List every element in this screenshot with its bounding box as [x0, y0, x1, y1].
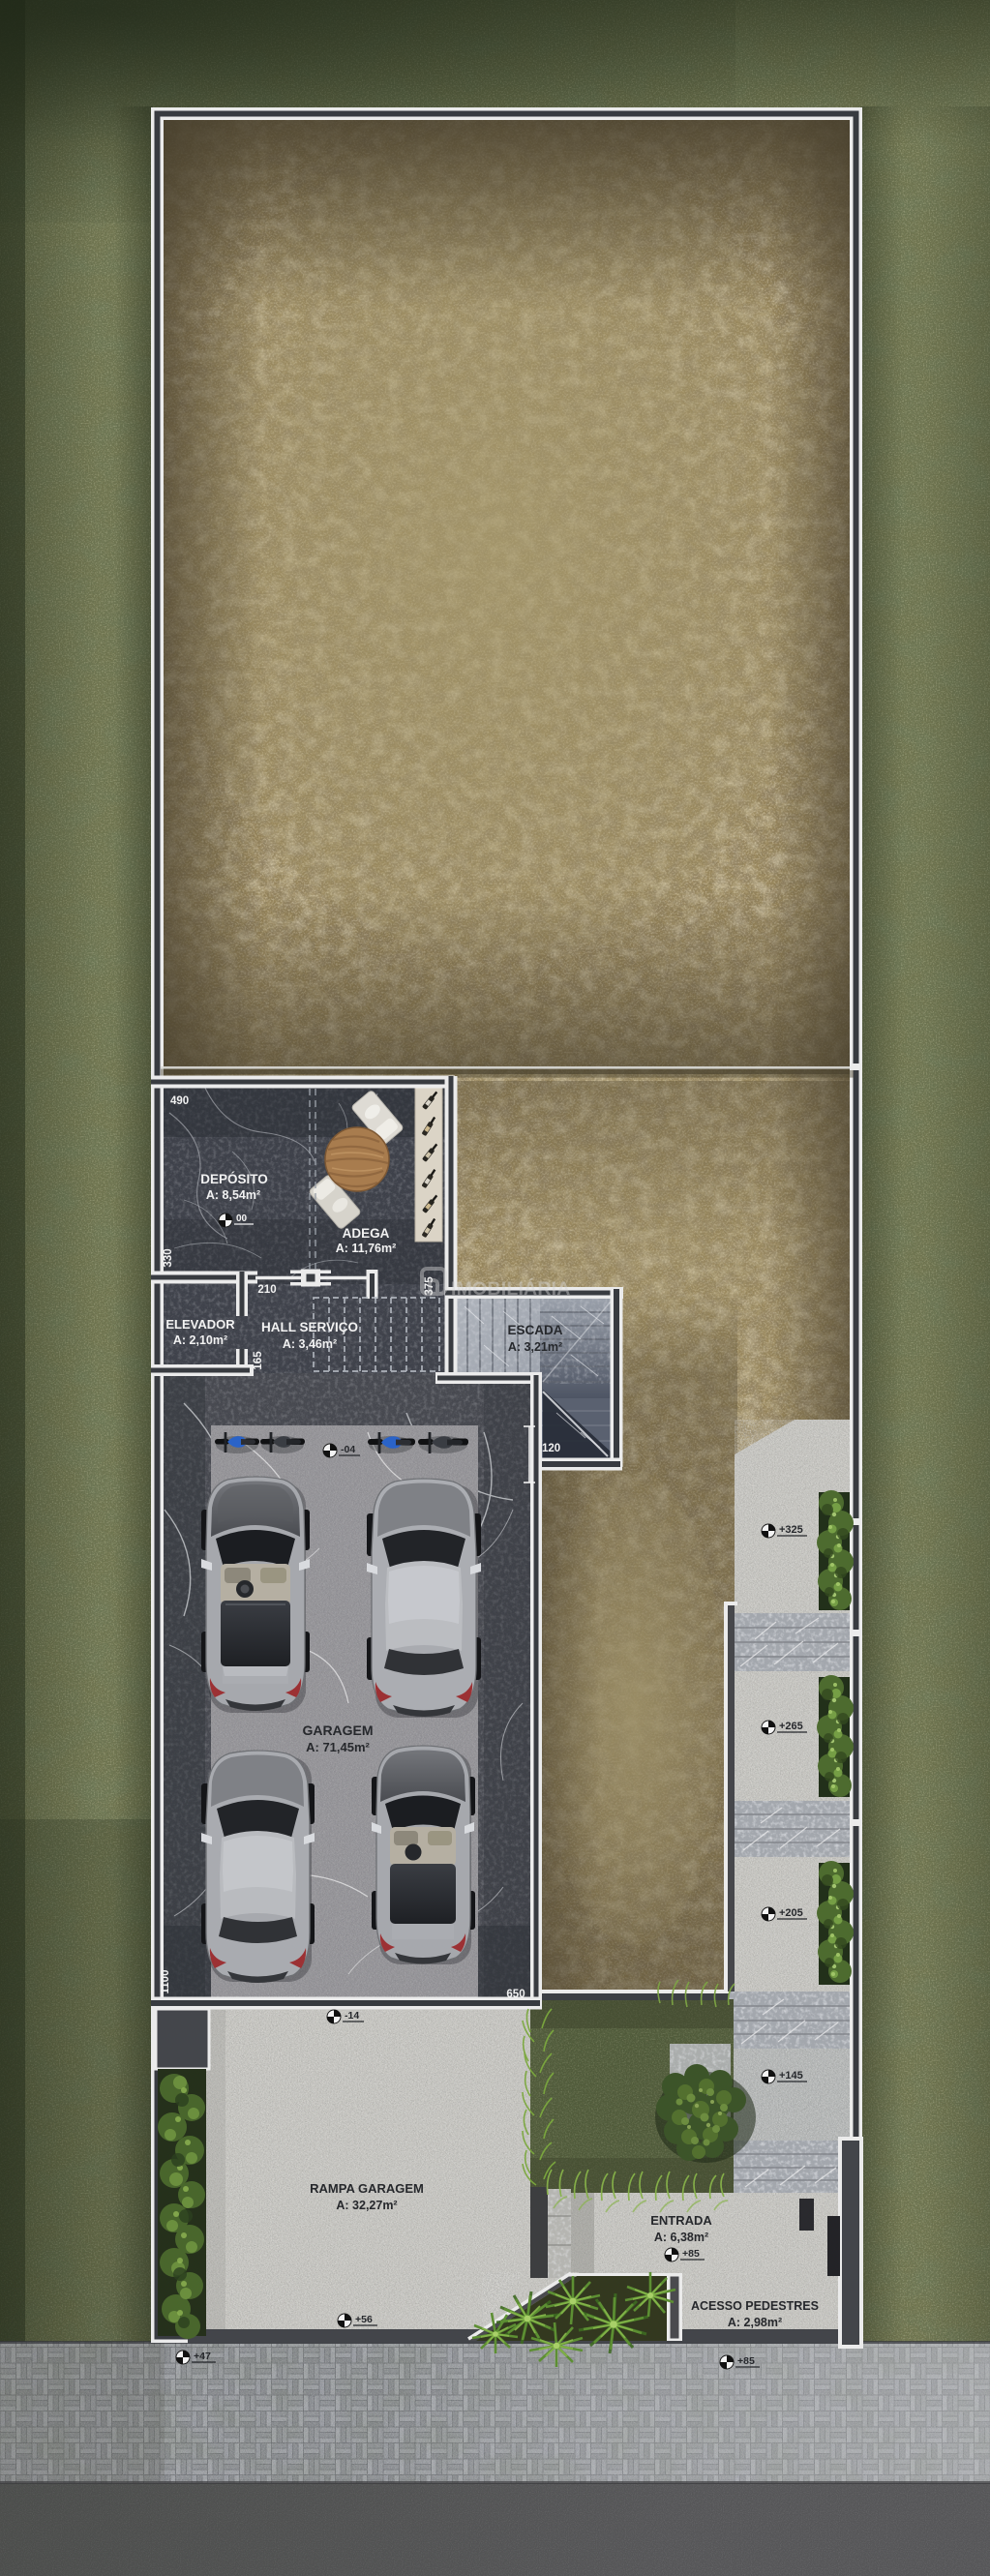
svg-text:ACESSO PEDESTRES: ACESSO PEDESTRES — [691, 2299, 819, 2313]
svg-text:165: 165 — [253, 1351, 264, 1370]
svg-text:+325: +325 — [779, 1524, 803, 1536]
svg-text:120: 120 — [542, 1443, 560, 1454]
svg-text:+47: +47 — [194, 2351, 211, 2362]
svg-text:+85: +85 — [737, 2355, 755, 2367]
svg-text:+205: +205 — [779, 1907, 803, 1919]
svg-text:330: 330 — [163, 1248, 174, 1267]
svg-text:HALL SERVIÇO: HALL SERVIÇO — [261, 1320, 358, 1334]
svg-text:DEPÓSITO: DEPÓSITO — [200, 1172, 268, 1186]
svg-text:GARAGEM: GARAGEM — [302, 1722, 373, 1738]
svg-text:A: 2,10m²: A: 2,10m² — [173, 1333, 227, 1347]
svg-text:RAMPA GARAGEM: RAMPA GARAGEM — [310, 2181, 424, 2196]
svg-text:A: 11,76m²: A: 11,76m² — [336, 1242, 397, 1255]
svg-text:-04: -04 — [341, 1444, 355, 1455]
svg-text:ESCADA: ESCADA — [507, 1323, 562, 1337]
svg-text:A: 32,27m²: A: 32,27m² — [336, 2199, 397, 2212]
svg-text:+56: +56 — [355, 2314, 373, 2325]
svg-text:ELEVADOR: ELEVADOR — [165, 1317, 235, 1332]
svg-text:-14: -14 — [345, 2010, 359, 2022]
svg-text:650: 650 — [506, 1989, 525, 2000]
svg-text:A: 71,45m²: A: 71,45m² — [306, 1740, 370, 1754]
svg-text:+265: +265 — [779, 1721, 803, 1732]
svg-text:210: 210 — [257, 1284, 276, 1296]
svg-text:A: 3,21m²: A: 3,21m² — [508, 1340, 562, 1354]
svg-text:A: 2,98m²: A: 2,98m² — [728, 2316, 782, 2329]
svg-text:1100: 1100 — [160, 1970, 171, 1994]
svg-text:IMOBILIÁRIA: IMOBILIÁRIA — [451, 1277, 571, 1300]
svg-text:A: 3,46m²: A: 3,46m² — [283, 1337, 337, 1351]
svg-text:ADEGA: ADEGA — [343, 1226, 390, 1241]
svg-text:490: 490 — [170, 1095, 189, 1107]
svg-text:+145: +145 — [779, 2070, 803, 2082]
svg-text:ENTRADA: ENTRADA — [650, 2213, 712, 2228]
svg-text:A: 8,54m²: A: 8,54m² — [206, 1188, 260, 1202]
svg-text:+85: +85 — [682, 2248, 700, 2260]
svg-text:00: 00 — [236, 1213, 248, 1224]
svg-text:A: 6,38m²: A: 6,38m² — [654, 2231, 708, 2244]
